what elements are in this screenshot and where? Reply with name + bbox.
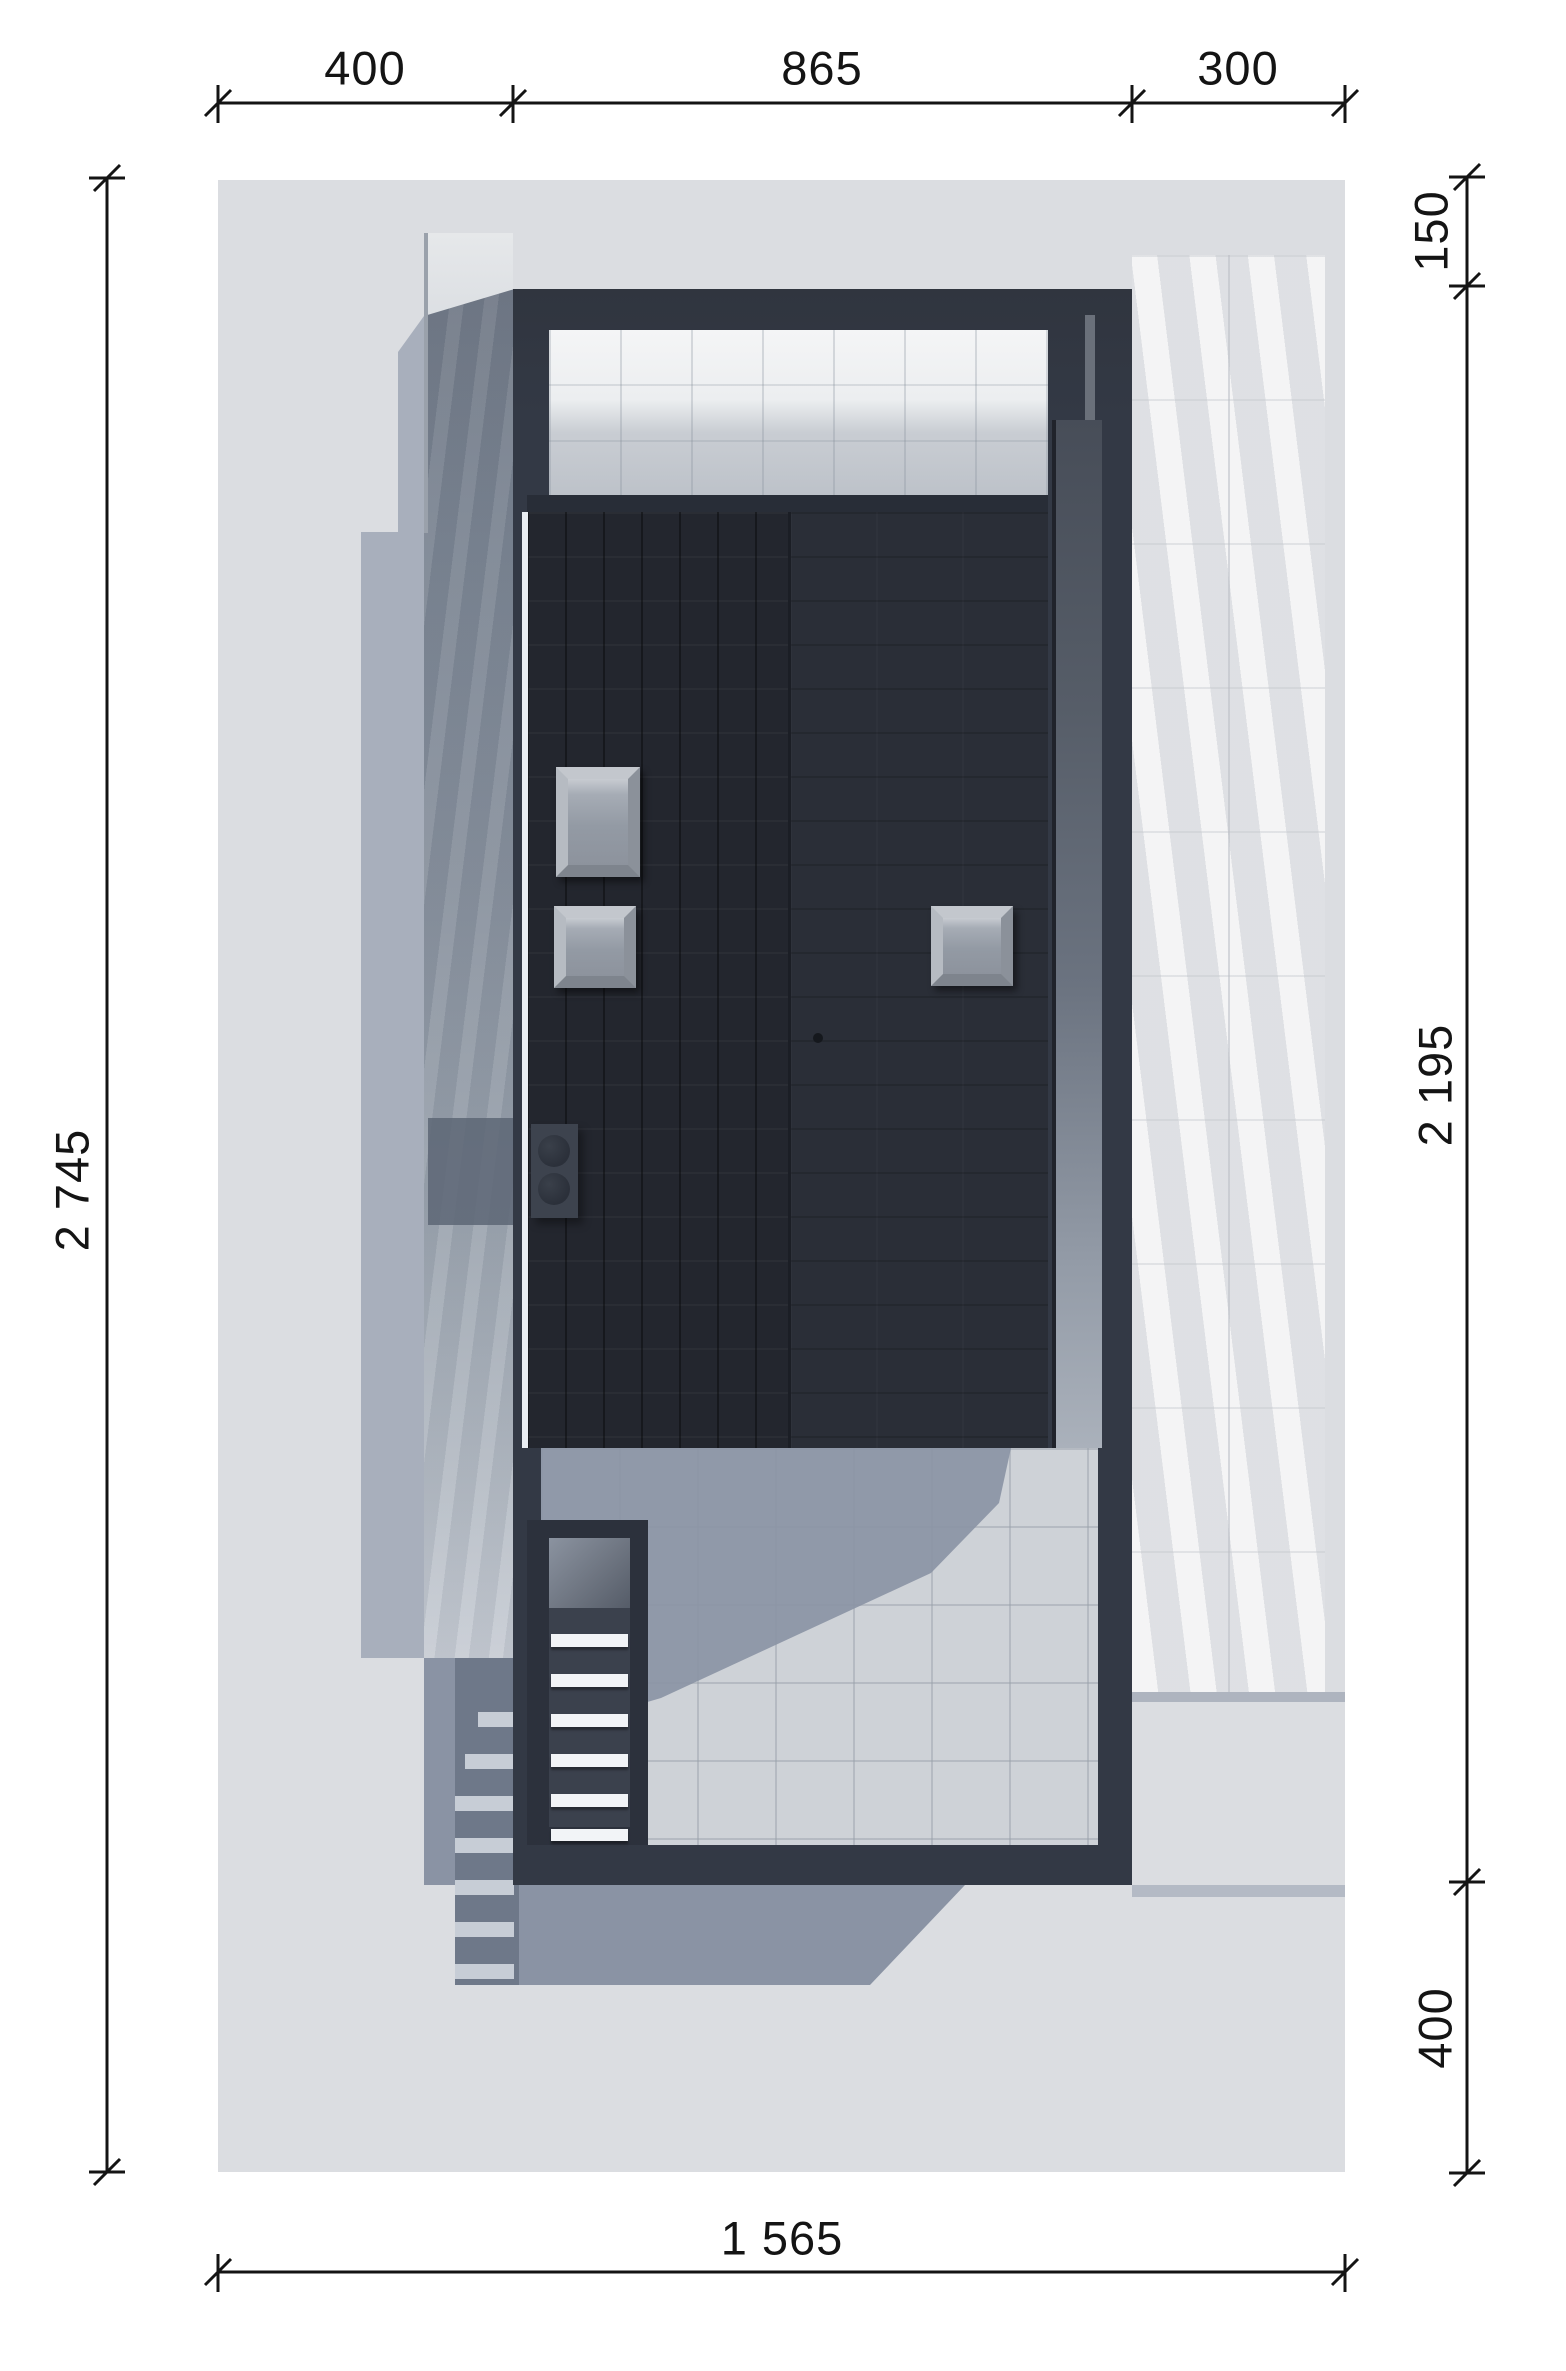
- stair-tread: [551, 1829, 628, 1841]
- house-building: [513, 289, 1132, 1885]
- roof-edge-gutter-line: [522, 512, 528, 1448]
- stair-landing: [549, 1538, 630, 1608]
- utility-knob-icon: [538, 1173, 570, 1205]
- dim-right-400: 400: [1408, 1987, 1463, 2068]
- stair-tread: [551, 1634, 628, 1647]
- roof-top-fascia: [527, 495, 1048, 512]
- dim-right-2195: 2 195: [1408, 1024, 1463, 1147]
- site-render-photo: [218, 180, 1345, 2172]
- roof-vent-icon: [813, 1033, 823, 1043]
- stair-tread: [551, 1714, 628, 1727]
- stair-tread: [551, 1674, 628, 1687]
- top-terrace: [549, 330, 1048, 495]
- skylight-3: [931, 906, 1013, 986]
- stairwell: [527, 1520, 648, 1845]
- stair-tread: [551, 1794, 628, 1807]
- dim-left-2745: 2 745: [45, 1129, 100, 1252]
- roof-ridge-line: [788, 512, 791, 1448]
- dim-top-865: 865: [781, 41, 862, 96]
- dim-top-400: 400: [324, 41, 405, 96]
- stair-shadow-bar: [455, 1922, 514, 1937]
- meter-box-shadow: [428, 1118, 513, 1225]
- dim-bottom-1565: 1 565: [721, 2211, 844, 2266]
- stair-shadow-bar: [455, 1838, 514, 1853]
- side-corridor: [1052, 420, 1102, 1448]
- skylight-1: [556, 767, 640, 877]
- corridor-top-sliver: [1085, 315, 1095, 420]
- stair-shadow-bar: [478, 1712, 514, 1727]
- stair-shadow-bar: [465, 1754, 514, 1769]
- stair-shadow-bar: [455, 1964, 514, 1979]
- skylight-2: [554, 906, 636, 988]
- stair-shadow-bar: [455, 1880, 514, 1895]
- stairwell-inner: [549, 1538, 630, 1827]
- utility-box: [531, 1124, 578, 1218]
- stair-tread: [551, 1754, 628, 1767]
- site-plan-page: 400 865 300 2 745 150 2 195 400 1 565: [0, 0, 1566, 2371]
- stair-shadow-bar: [455, 1796, 514, 1811]
- dim-top-300: 300: [1197, 41, 1278, 96]
- utility-knob-icon: [538, 1135, 570, 1167]
- dim-right-150: 150: [1404, 190, 1459, 271]
- terrace-tile-grid: [549, 330, 1048, 495]
